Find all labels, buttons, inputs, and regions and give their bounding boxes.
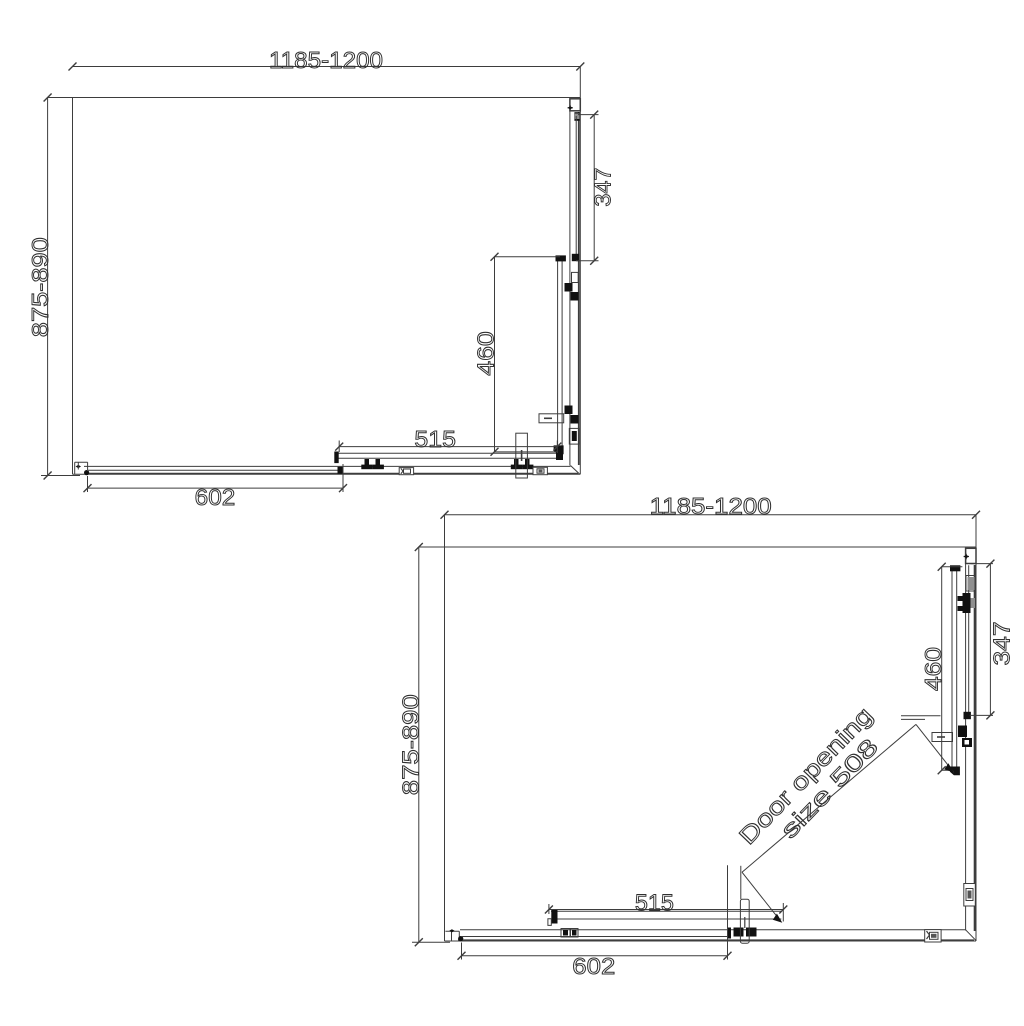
svg-text:875-890: 875-890 [27, 237, 53, 337]
svg-text:460: 460 [473, 331, 499, 376]
svg-text:515: 515 [635, 889, 674, 915]
svg-text:1185-1200: 1185-1200 [269, 47, 383, 73]
svg-text:347: 347 [589, 168, 615, 207]
svg-text:515: 515 [414, 426, 456, 452]
svg-text:347: 347 [989, 622, 1015, 666]
svg-text:1185-1200: 1185-1200 [650, 493, 772, 519]
svg-text:460: 460 [920, 647, 946, 691]
svg-text:875-890: 875-890 [397, 694, 423, 795]
svg-text:602: 602 [572, 953, 615, 979]
svg-text:602: 602 [195, 484, 236, 510]
